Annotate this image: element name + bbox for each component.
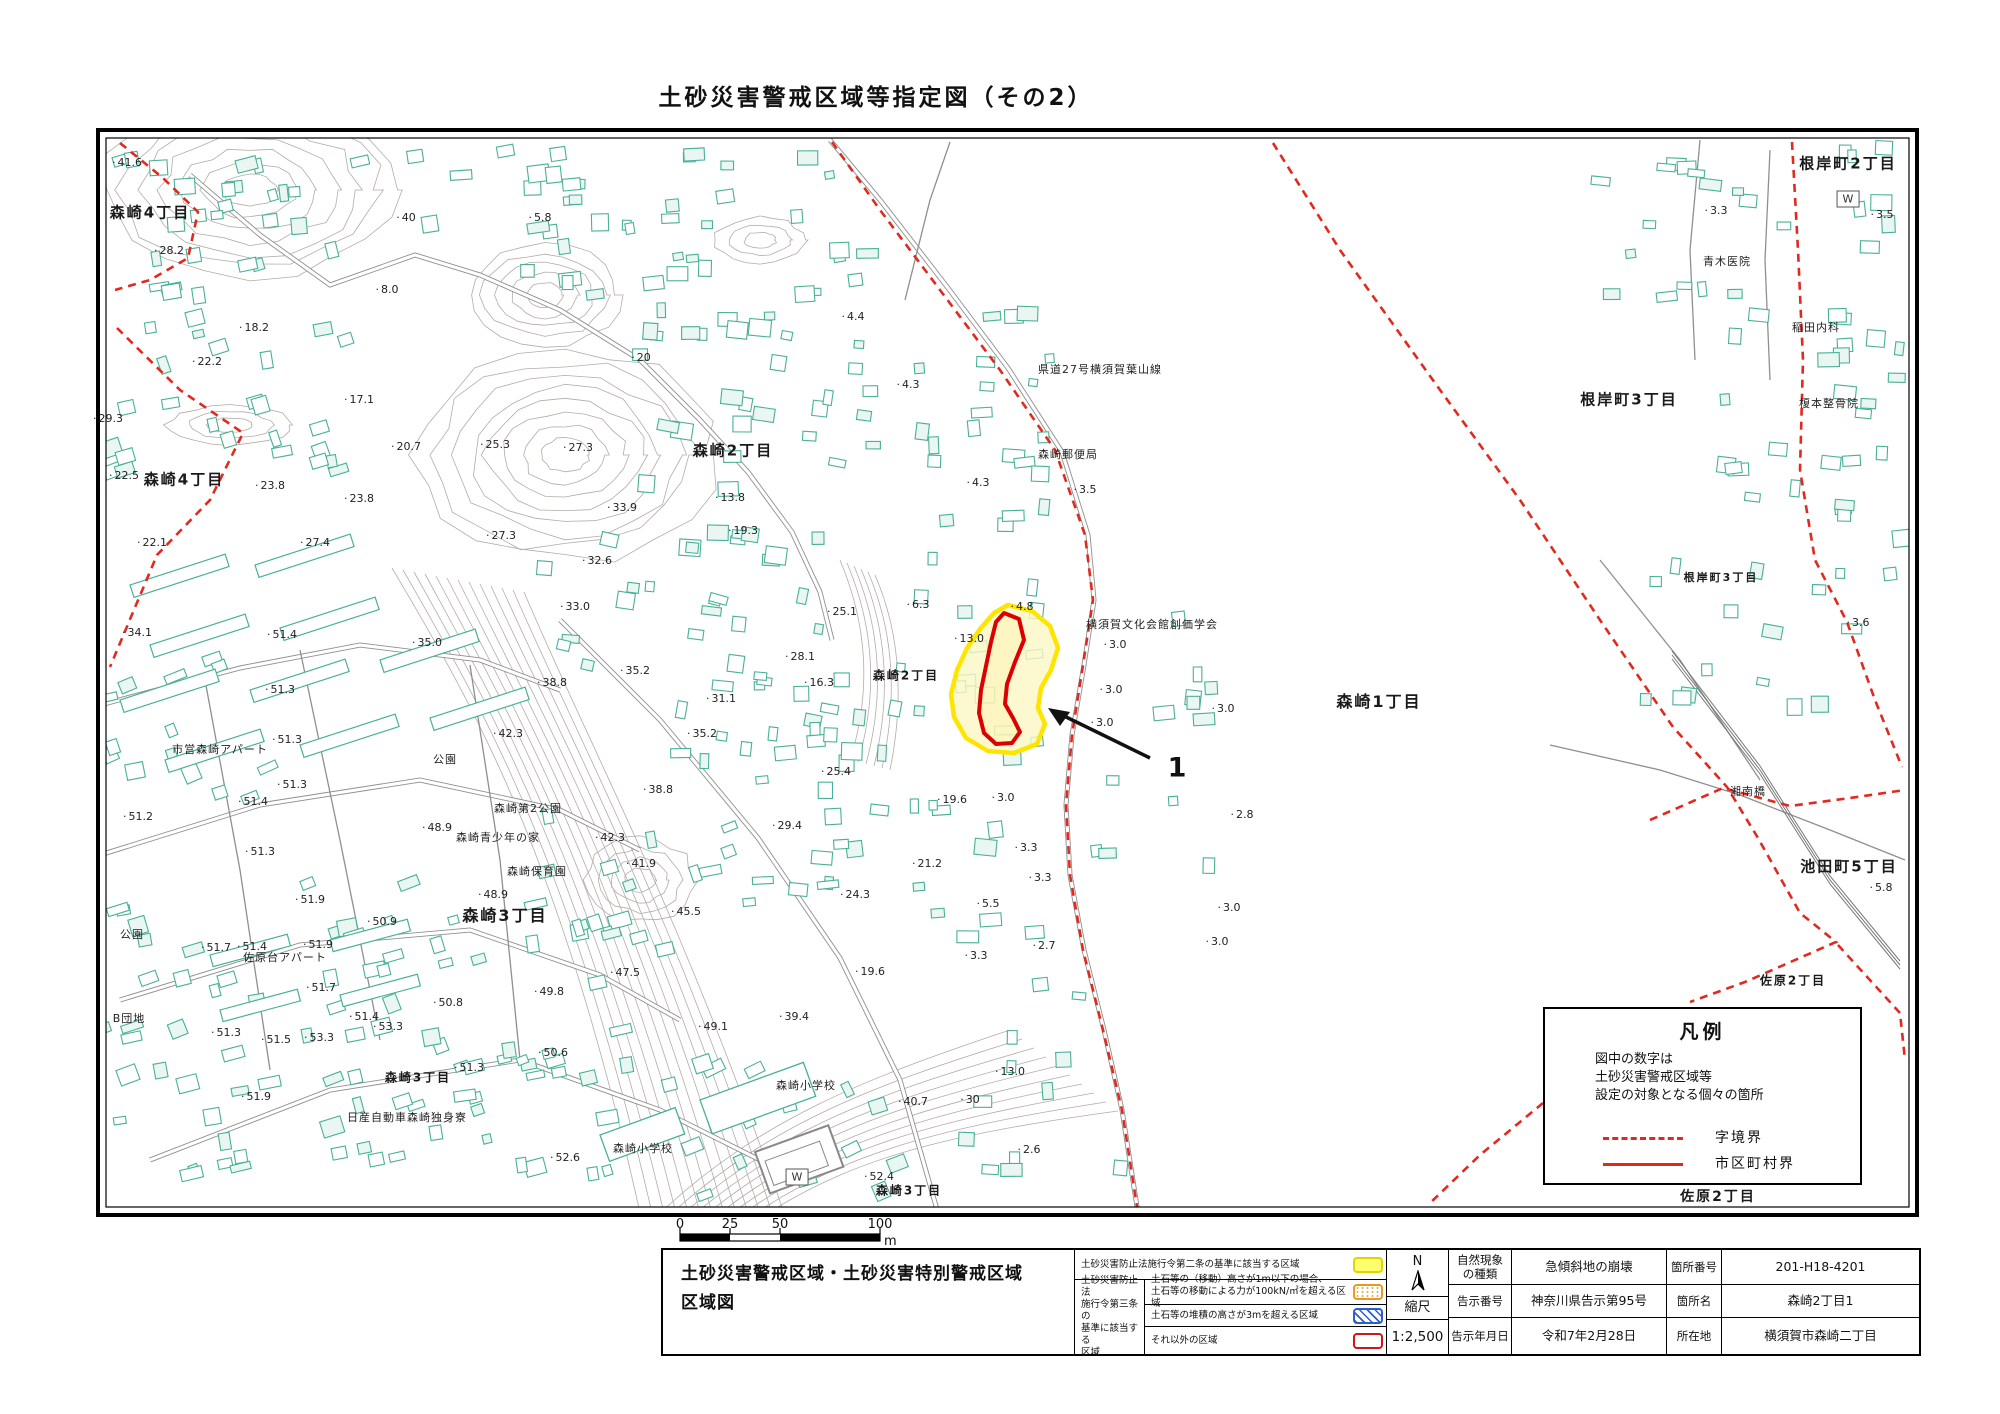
boundary-solid-line-sample (1603, 1163, 1683, 1166)
info-table: 土砂災害警戒区域・土砂災害特別警戒区域 区域図 土砂災害防止法施行令第二条の基準… (661, 1248, 1921, 1356)
law-row2-desc: 土石等の（移動）高さが1m以下の場合、 土石等の移動による力が100kN/㎡を超… (1145, 1280, 1349, 1305)
field-label-notice-number: 告示番号 (1449, 1285, 1512, 1318)
hazard-arrow (1048, 708, 1150, 758)
hazard-zones (951, 605, 1058, 753)
yellow-zone-swatch (1353, 1257, 1383, 1273)
field-label-location: 所在地 (1667, 1318, 1722, 1354)
boundary-dashed-label: 字境界 (1715, 1127, 1763, 1147)
field-label-site-name: 箇所名 (1667, 1285, 1722, 1318)
field-value-notice-number: 神奈川県告示第95号 (1512, 1285, 1667, 1318)
field-value-phenomenon: 急傾斜地の崩壊 (1512, 1250, 1667, 1285)
red-outline-swatch (1353, 1333, 1383, 1349)
scale-bar (680, 1228, 880, 1241)
law-row4-swatch-cell (1349, 1327, 1387, 1354)
compass-n-label: N (1413, 1254, 1423, 1270)
law-row2-swatch-cell (1349, 1280, 1387, 1305)
law-row1-swatch-cell (1349, 1250, 1387, 1280)
blue-hatch-swatch (1353, 1308, 1383, 1324)
law-row3-swatch-cell (1349, 1305, 1387, 1327)
field-label-notice-date: 告示年月日 (1449, 1318, 1512, 1354)
hazard-map-sheet: 土砂災害警戒区域等指定図（その2） 森崎4丁目森崎4丁目森崎2丁目森崎2丁目森崎… (0, 0, 2000, 1414)
field-label-site-number: 箇所番号 (1667, 1250, 1722, 1285)
field-label-phenomenon: 自然現象 の種類 (1449, 1250, 1512, 1285)
legend-note: 図中の数字は 土砂災害警戒区域等 設定の対象となる個々の箇所 (1595, 1051, 1764, 1106)
law-group-label: 土砂災害防止法 施行令第三条の 基準に該当する 区域 (1075, 1280, 1145, 1354)
north-arrow-icon (1409, 1270, 1427, 1292)
law-row3-desc: 土石等の堆積の高さが3mを超える区域 (1145, 1305, 1349, 1327)
boundary-dashed-line-sample (1603, 1137, 1683, 1140)
orange-dots-swatch (1353, 1284, 1383, 1300)
doc-title: 土砂災害警戒区域・土砂災害特別警戒区域 区域図 (663, 1250, 1075, 1354)
scale-value: 1:2,500 (1387, 1320, 1449, 1354)
field-value-location: 横須賀市森崎二丁目 (1722, 1318, 1919, 1354)
field-value-notice-date: 令和7年2月28日 (1512, 1318, 1667, 1354)
boundary-solid-label: 市区町村界 (1715, 1153, 1795, 1173)
map-canvas[interactable] (0, 0, 2000, 1414)
compass-cell: N (1387, 1250, 1449, 1297)
law-row4-desc: それ以外の区域 (1145, 1327, 1349, 1354)
scale-label: 縮尺 (1387, 1297, 1449, 1320)
legend-box: 凡例 図中の数字は 土砂災害警戒区域等 設定の対象となる個々の箇所 字境界 市区… (1543, 1007, 1862, 1185)
legend-title: 凡例 (1545, 1017, 1860, 1044)
field-value-site-name: 森崎2丁目1 (1722, 1285, 1919, 1318)
field-value-site-number: 201-H18-4201 (1722, 1250, 1919, 1285)
